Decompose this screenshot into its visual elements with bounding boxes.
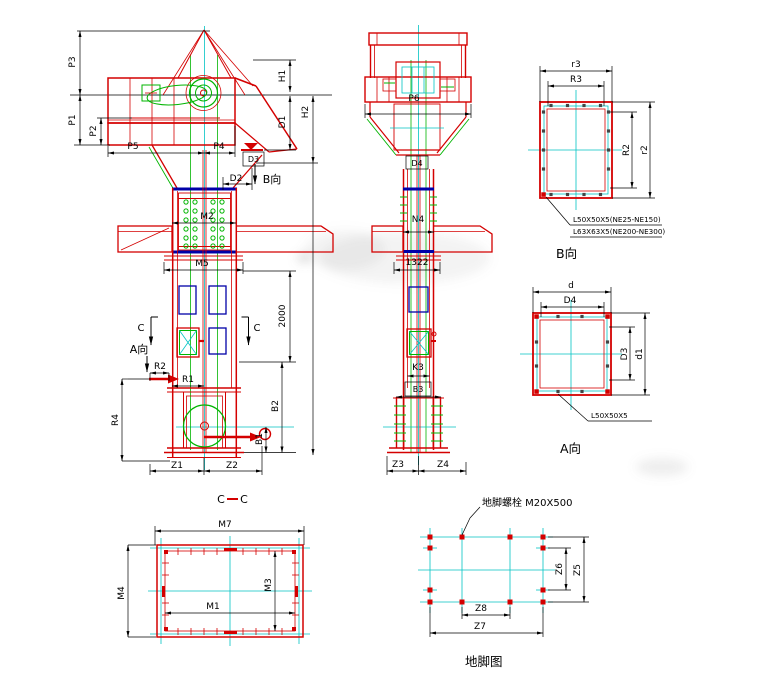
cc-title-left: C	[217, 493, 225, 506]
cad-drawing-page: P3 P1 P2 P5 P4 H1 D1 H2 D3 D2 B向 M2 M5 2…	[0, 0, 758, 673]
dim-label-z8: Z8	[475, 604, 487, 614]
angle-steel-note-2: L63X63X5(NE200-NE300)	[573, 227, 665, 236]
dim-label-1322: 1322	[406, 258, 429, 268]
dim-label-b3: B3	[413, 385, 424, 394]
dim-label-m1: M1	[206, 602, 220, 612]
detail-b-title: B向	[556, 246, 577, 261]
dim-label-k3: K3	[412, 363, 424, 373]
dim-label-d4: D4	[564, 296, 577, 306]
dim-label-p6: P6	[408, 94, 419, 104]
dim-label-r3-lower: r3	[571, 60, 580, 70]
dim-label-d4: D4	[411, 159, 422, 168]
dim-label-r1: R1	[182, 375, 194, 385]
dim-label-p3: P3	[68, 56, 78, 67]
dim-label-z1: Z1	[171, 461, 183, 471]
dim-label-m3: M3	[264, 578, 274, 592]
dim-label-z3: Z3	[392, 460, 404, 470]
dim-label-d2: D2	[230, 174, 243, 184]
dim-label-r2-upper: R2	[622, 144, 632, 156]
dim-label-z5: Z5	[573, 564, 583, 576]
dim-label-m2: M2	[200, 212, 214, 222]
dim-label-b2: B2	[271, 400, 281, 412]
dim-label-d1: d1	[635, 348, 645, 359]
dim-label-r3-upper: R3	[570, 75, 582, 85]
dim-label-p5: P5	[127, 142, 138, 152]
dim-label-m7: M7	[218, 520, 232, 530]
dim-label-r2: R2	[154, 362, 166, 372]
angle-steel-note: L50X50X5	[591, 411, 628, 420]
anchor-bolt-note: 地脚螺栓 M20X500	[482, 496, 572, 509]
view-direction-b: B向	[263, 172, 282, 186]
dim-label-h2: H2	[301, 106, 311, 119]
dim-label-b1: B1	[255, 433, 265, 445]
dim-label-z6: Z6	[555, 563, 565, 575]
dim-label-d: d	[568, 281, 574, 291]
paper-background	[0, 0, 758, 673]
dim-label-2000: 2000	[278, 304, 288, 327]
dim-label-d3: D3	[620, 348, 630, 361]
dim-label-d3: D3	[248, 155, 259, 164]
detail-a-title: A向	[560, 441, 581, 456]
section-mark-c-left: C	[138, 323, 145, 334]
section-mark-c-right: C	[254, 323, 261, 334]
dim-label-p4: P4	[213, 142, 224, 152]
foundation-title: 地脚图	[465, 654, 503, 669]
drawing-canvas: P3 P1 P2 P5 P4 H1 D1 H2 D3 D2 B向 M2 M5 2…	[0, 0, 758, 673]
dim-label-h1: H1	[278, 70, 288, 83]
dim-label-n4: N4	[412, 215, 425, 225]
dim-label-m5: M5	[195, 259, 209, 269]
dim-label-r2-lower: r2	[640, 145, 650, 154]
dim-label-z7: Z7	[474, 622, 486, 632]
cc-title-right: C	[240, 493, 248, 506]
dim-label-d1: D1	[278, 116, 288, 129]
dim-label-z4: Z4	[437, 460, 449, 470]
dim-label-r4: R4	[111, 414, 121, 426]
angle-steel-note-1: L50X50X5(NE25-NE150)	[573, 215, 661, 224]
view-direction-a: A向	[130, 342, 149, 356]
dim-label-m4: M4	[117, 586, 127, 600]
dim-label-z2: Z2	[226, 461, 238, 471]
dim-label-p1: P1	[68, 114, 78, 125]
dim-label-p2: P2	[89, 125, 99, 136]
